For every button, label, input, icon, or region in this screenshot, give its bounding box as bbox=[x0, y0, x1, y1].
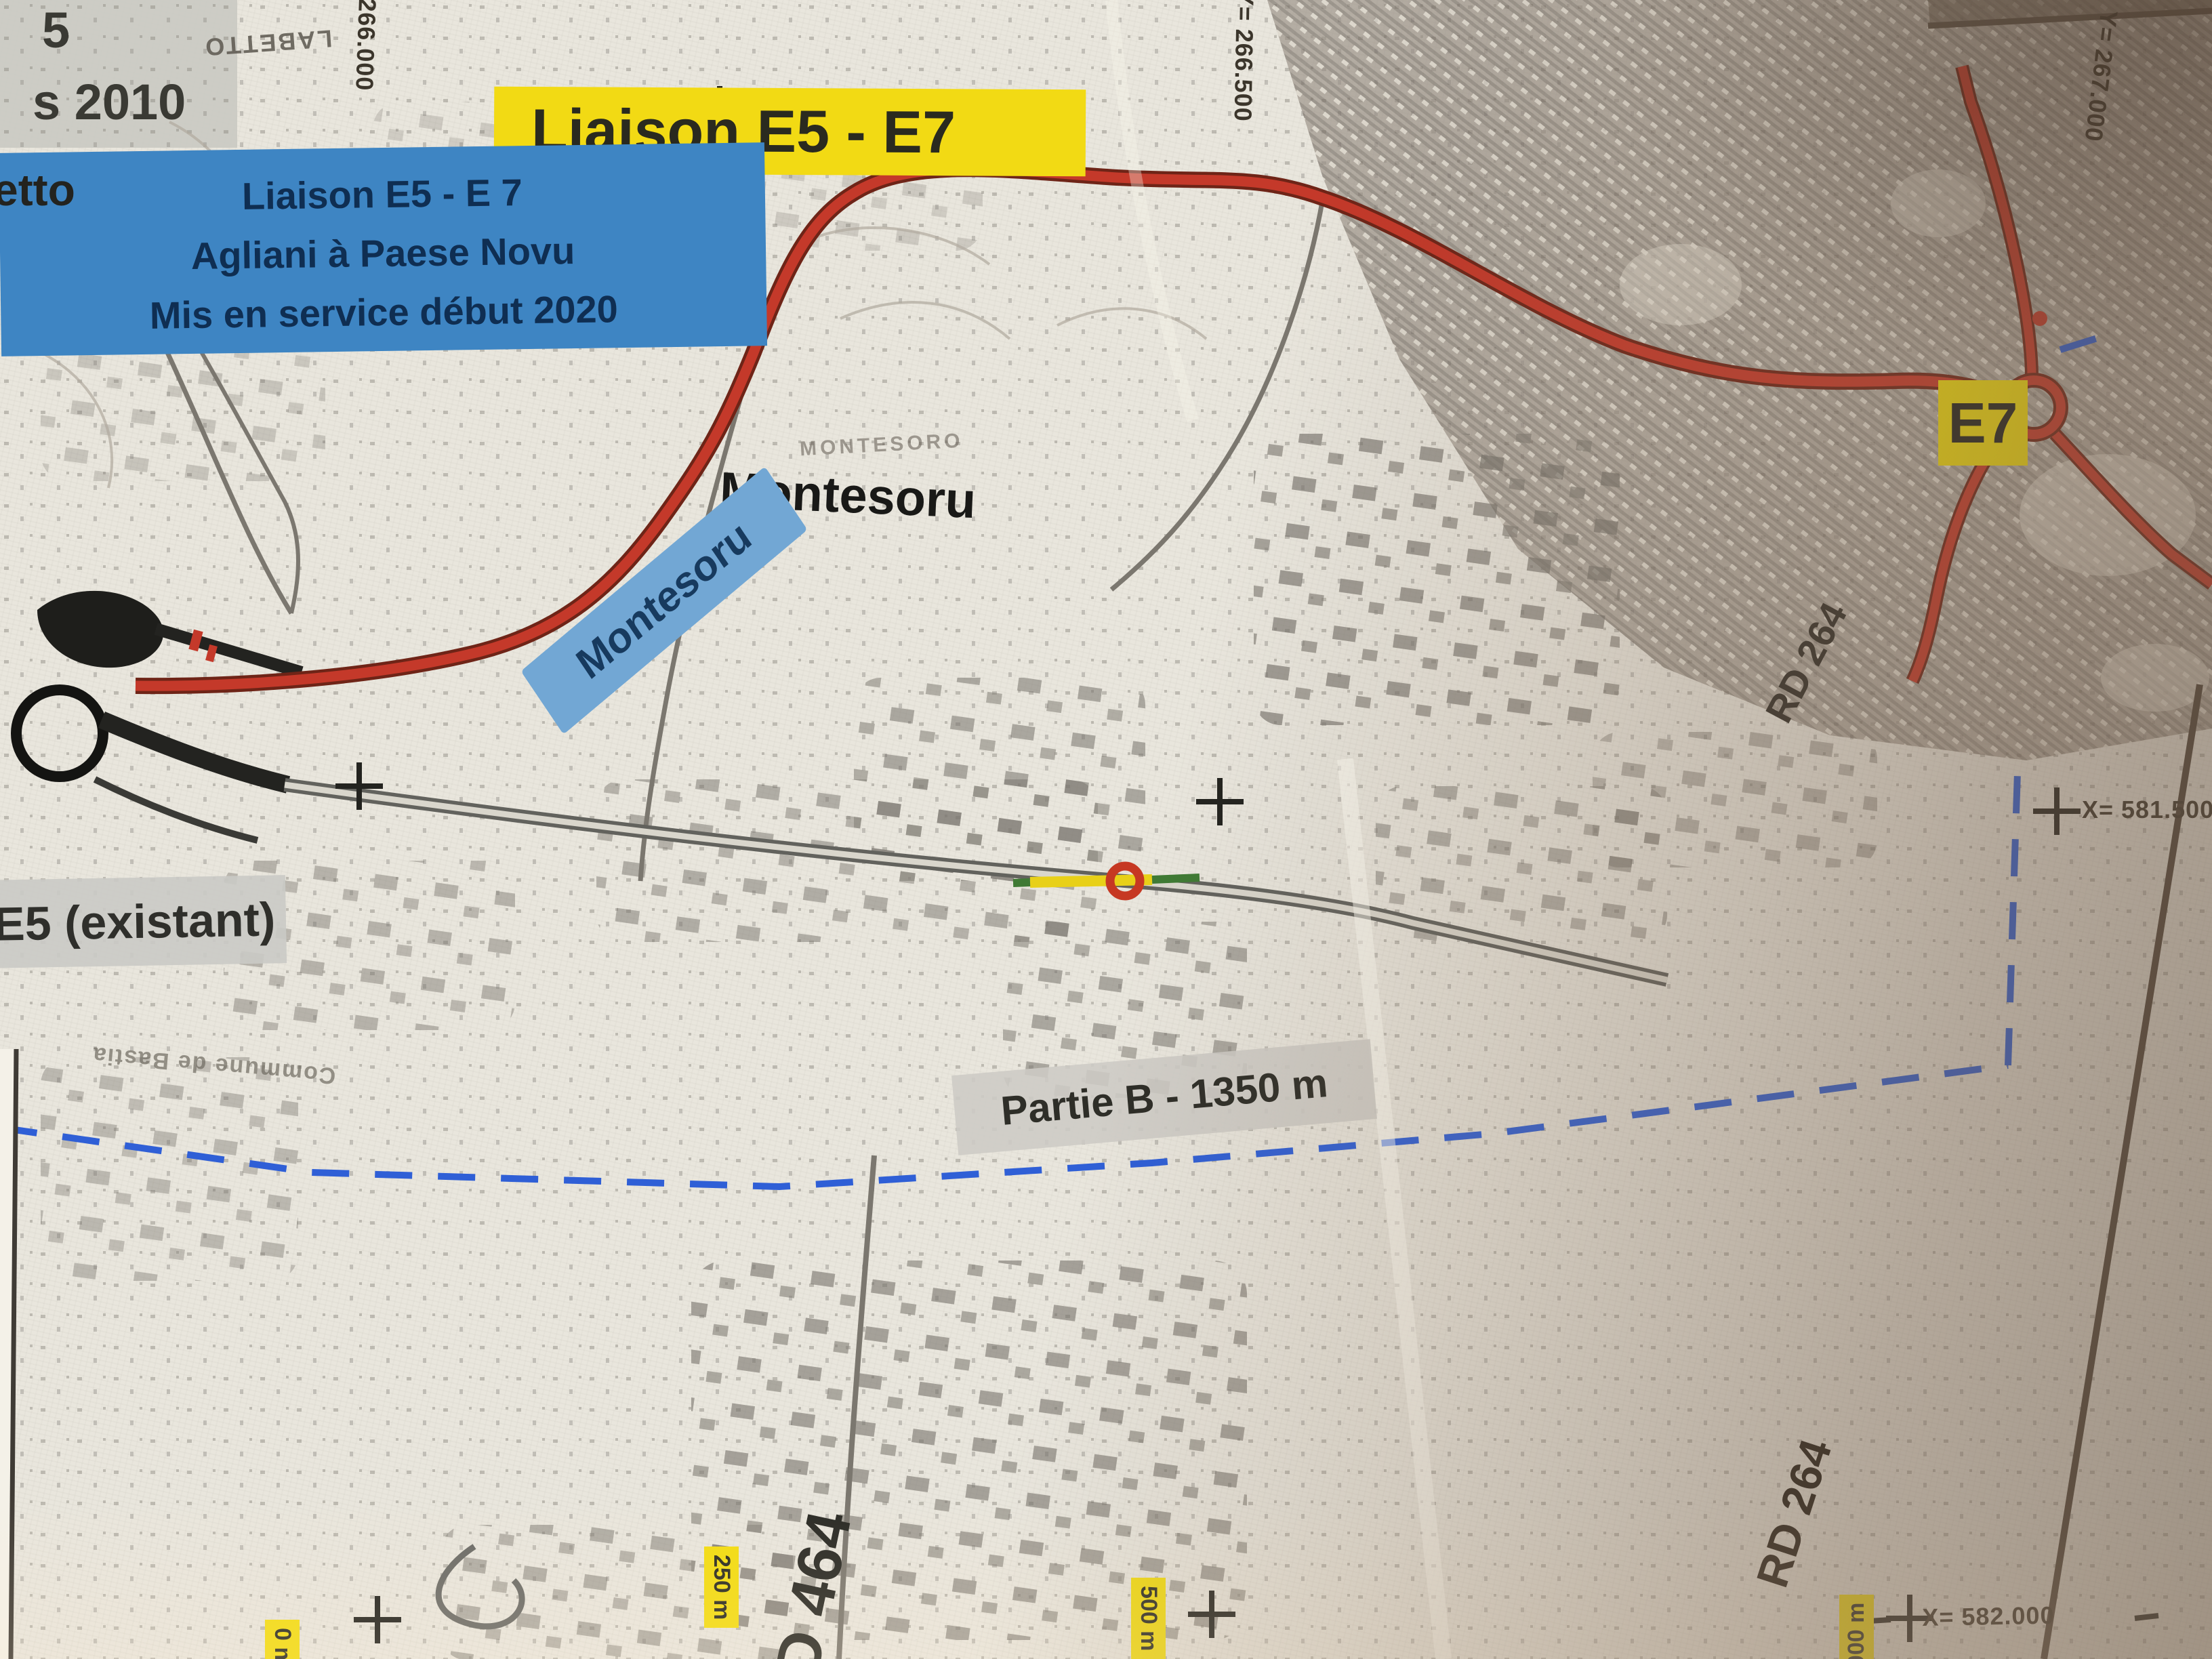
etto-partial-label: etto bbox=[0, 164, 75, 216]
e7-badge: E7 bbox=[1938, 380, 2028, 466]
scale-mark-250m: 250 m bbox=[704, 1547, 739, 1628]
scale-mark-500m: 500 m bbox=[1131, 1578, 1166, 1659]
partial-label-line1: 5 bbox=[42, 1, 70, 59]
info-box-line3: Mis en service début 2020 bbox=[1, 278, 767, 348]
partial-label-line2: s 2010 bbox=[33, 73, 186, 131]
scale-mark-1000m: 1000 m bbox=[1839, 1595, 1874, 1659]
info-box-line2: Agliani à Paese Novu bbox=[0, 219, 766, 289]
grid-y-266000: Y= 266.000 bbox=[350, 0, 383, 91]
info-box-line1: Liaison E5 - E 7 bbox=[0, 160, 765, 230]
project-info-box: Liaison E5 - E 7 Agliani à Paese Novu Mi… bbox=[0, 142, 767, 356]
map-photo: Liaison E5 - E7 Montesoru MONTESORO Mont… bbox=[0, 0, 2212, 1659]
grid-x-581500: X= 581.500 bbox=[2082, 796, 2212, 824]
grid-y-266500: Y= 266.500 bbox=[1229, 0, 1259, 122]
scale-mark-0m: 0 m bbox=[265, 1620, 300, 1659]
grid-x-582000: X= 582.000 bbox=[1922, 1601, 2055, 1632]
e5-existing-label: E5 (existant) bbox=[0, 875, 287, 968]
